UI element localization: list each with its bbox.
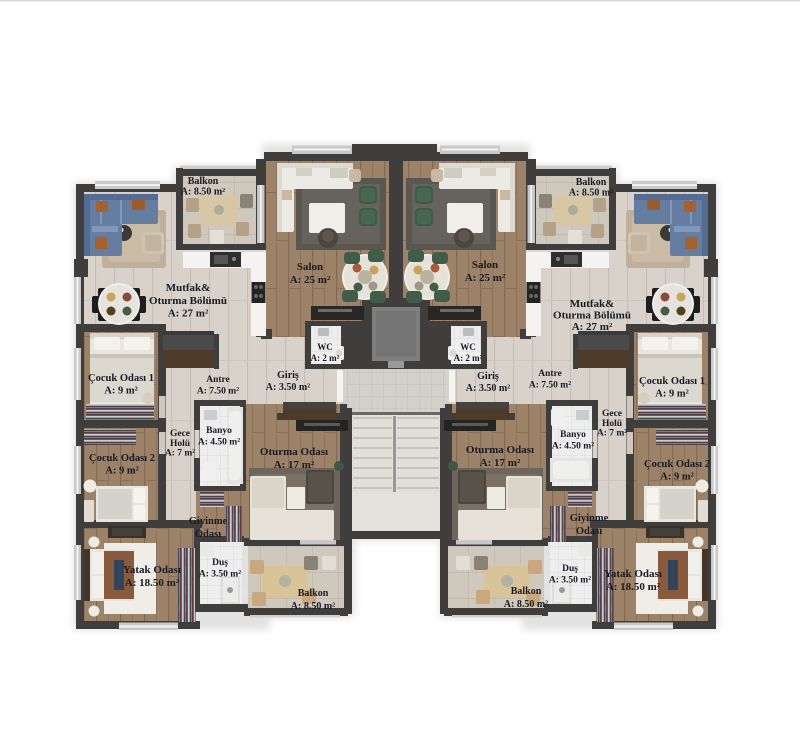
svg-text:A: 9 m²: A: 9 m² — [104, 386, 137, 397]
svg-text:Oturma Odası: Oturma Odası — [260, 446, 328, 458]
svg-text:A: 8.50 m²: A: 8.50 m² — [291, 601, 335, 612]
svg-text:A: 18.50 m²: A: 18.50 m² — [606, 581, 661, 593]
svg-text:Oturma Odası: Oturma Odası — [466, 444, 534, 456]
svg-text:Banyo: Banyo — [206, 426, 232, 436]
svg-text:Oturma Bölümü: Oturma Bölümü — [553, 310, 631, 322]
svg-text:A: 7.50 m²: A: 7.50 m² — [197, 387, 239, 397]
svg-text:Balkon: Balkon — [511, 586, 542, 597]
svg-text:Balkon: Balkon — [298, 588, 329, 599]
svg-text:A: 7 m²: A: 7 m² — [597, 429, 627, 439]
svg-text:A: 3.50 m²: A: 3.50 m² — [549, 576, 591, 586]
svg-text:A: 3.50 m²: A: 3.50 m² — [266, 382, 310, 393]
svg-text:A: 4.50 m²: A: 4.50 m² — [198, 438, 240, 448]
svg-text:A: 4.50 m²: A: 4.50 m² — [552, 442, 594, 452]
svg-text:Balkon: Balkon — [576, 177, 607, 188]
svg-text:A: 3.50 m²: A: 3.50 m² — [466, 383, 510, 394]
svg-text:A: 9 m²: A: 9 m² — [655, 389, 688, 400]
svg-text:A: 2 m²: A: 2 m² — [454, 353, 483, 363]
svg-text:Antre: Antre — [206, 375, 230, 385]
svg-text:A: 18.50 m²: A: 18.50 m² — [125, 577, 180, 589]
svg-text:Çocuk Odası 1: Çocuk Odası 1 — [88, 373, 154, 384]
svg-text:Antre: Antre — [538, 369, 562, 379]
svg-text:Mutfak&: Mutfak& — [166, 282, 211, 294]
svg-text:Holü: Holü — [602, 419, 623, 429]
svg-text:Giyinme: Giyinme — [570, 513, 609, 524]
svg-text:Salon: Salon — [472, 259, 498, 271]
svg-text:A: 17 m²: A: 17 m² — [274, 459, 315, 471]
svg-text:A: 9 m²: A: 9 m² — [105, 466, 138, 477]
svg-text:Gece: Gece — [170, 429, 190, 439]
svg-text:Mutfak&: Mutfak& — [570, 298, 615, 310]
svg-text:A: 17 m²: A: 17 m² — [480, 457, 521, 469]
svg-text:A: 8.50 m²: A: 8.50 m² — [504, 599, 548, 610]
svg-text:Salon: Salon — [297, 261, 323, 273]
svg-text:A: 8.50 m²: A: 8.50 m² — [181, 187, 225, 198]
svg-text:A: 7 m²: A: 7 m² — [165, 449, 195, 459]
svg-text:Giriş: Giriş — [277, 370, 299, 381]
svg-text:A: 9 m²: A: 9 m² — [660, 472, 693, 483]
svg-text:Gece: Gece — [602, 409, 622, 419]
svg-text:Holü: Holü — [170, 439, 191, 449]
svg-text:Yatak Odası: Yatak Odası — [604, 568, 662, 580]
svg-text:A: 2 m²: A: 2 m² — [311, 353, 340, 363]
svg-text:A: 25 m²: A: 25 m² — [465, 272, 506, 284]
svg-text:A: 8.50 m²: A: 8.50 m² — [569, 188, 613, 199]
svg-text:A: 27 m²: A: 27 m² — [168, 308, 209, 320]
svg-text:Çocuk Odası 1: Çocuk Odası 1 — [639, 376, 705, 387]
svg-text:Giriş: Giriş — [477, 371, 499, 382]
svg-text:Duş: Duş — [212, 558, 228, 568]
svg-text:Çocuk Odası 2: Çocuk Odası 2 — [89, 453, 155, 464]
svg-text:A: 27 m²: A: 27 m² — [572, 321, 613, 333]
svg-text:A: 3.50 m²: A: 3.50 m² — [199, 570, 241, 580]
svg-text:Balkon: Balkon — [188, 176, 219, 187]
svg-text:Çocuk Odası 2: Çocuk Odası 2 — [644, 459, 710, 470]
svg-text:A: 7.50 m²: A: 7.50 m² — [529, 381, 571, 391]
svg-text:Oturma Bölümü: Oturma Bölümü — [149, 295, 227, 307]
svg-text:Odası: Odası — [576, 526, 602, 537]
svg-text:Yatak Odası: Yatak Odası — [123, 564, 181, 576]
svg-text:WC: WC — [460, 342, 476, 352]
svg-text:Duş: Duş — [562, 564, 578, 574]
svg-text:Odası: Odası — [195, 529, 221, 540]
svg-text:A: 25 m²: A: 25 m² — [290, 274, 331, 286]
svg-text:Banyo: Banyo — [560, 430, 586, 440]
svg-text:WC: WC — [317, 342, 333, 352]
svg-text:Giyinme: Giyinme — [189, 516, 228, 527]
